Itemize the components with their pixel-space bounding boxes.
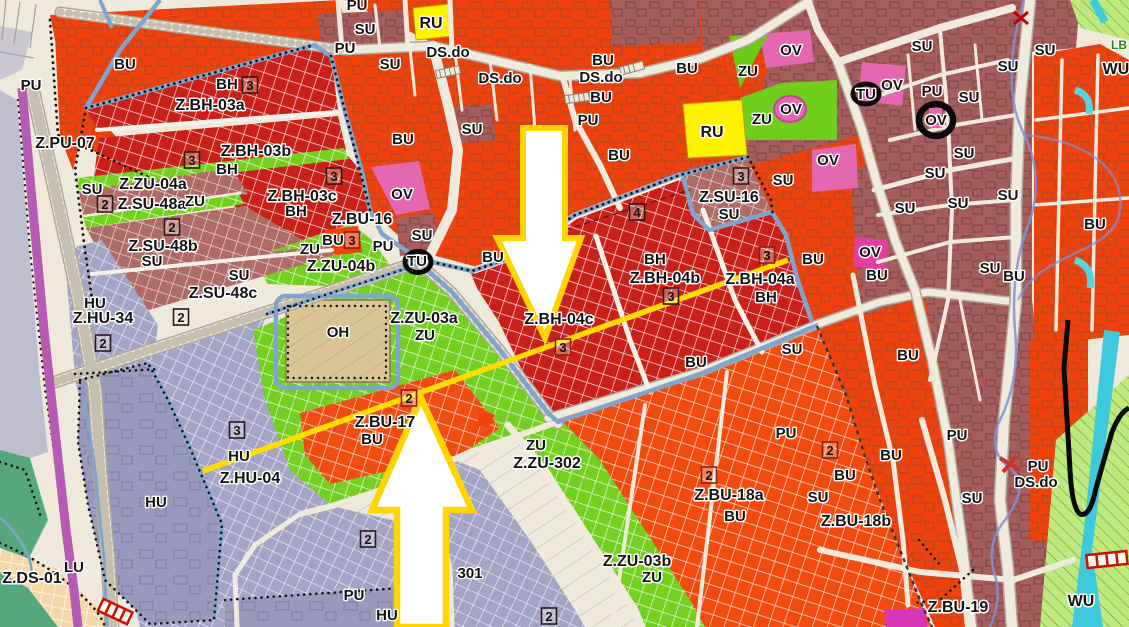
svg-text:DS.do: DS.do <box>478 70 521 87</box>
svg-text:2: 2 <box>168 220 175 235</box>
svg-text:Z.ZU-03a: Z.ZU-03a <box>390 310 458 327</box>
svg-text:Z.BU-18b: Z.BU-18b <box>821 513 891 530</box>
svg-text:DS.do: DS.do <box>426 44 469 61</box>
svg-text:DS.do: DS.do <box>579 69 622 86</box>
svg-text:ZU: ZU <box>738 63 758 80</box>
svg-text:OV: OV <box>925 112 947 129</box>
svg-text:BH: BH <box>216 161 238 178</box>
svg-text:2: 2 <box>705 468 712 483</box>
svg-text:BU: BU <box>608 147 630 164</box>
svg-text:BH: BH <box>216 76 238 93</box>
svg-text:BH: BH <box>644 251 666 268</box>
svg-text:Z.ZU-04a: Z.ZU-04a <box>119 176 187 193</box>
svg-text:Z.SU-48a: Z.SU-48a <box>118 196 187 213</box>
svg-text:ZU: ZU <box>185 193 205 210</box>
svg-text:PU: PU <box>373 238 394 255</box>
svg-text:SU: SU <box>912 38 933 55</box>
svg-text:ZU: ZU <box>642 569 662 586</box>
svg-text:LB: LB <box>1111 38 1127 52</box>
svg-text:TU: TU <box>407 253 427 270</box>
svg-text:SU: SU <box>925 165 946 182</box>
svg-text:SU: SU <box>782 341 803 358</box>
svg-text:ZU: ZU <box>415 327 435 344</box>
svg-text:Z.HU-04: Z.HU-04 <box>220 470 281 487</box>
svg-text:HU: HU <box>145 494 167 511</box>
svg-text:SU: SU <box>229 267 250 284</box>
svg-text:OV: OV <box>780 101 802 118</box>
svg-text:RU: RU <box>419 15 442 32</box>
svg-text:BU: BU <box>592 52 614 69</box>
svg-text:2: 2 <box>405 391 412 406</box>
svg-text:OV: OV <box>780 42 802 59</box>
svg-text:SU: SU <box>1035 42 1056 59</box>
svg-text:ZU: ZU <box>300 241 320 258</box>
svg-text:BU: BU <box>322 232 344 249</box>
svg-text:2: 2 <box>364 532 371 547</box>
svg-text:PU: PU <box>1028 458 1049 475</box>
svg-text:ZU: ZU <box>752 111 772 128</box>
svg-text:SU: SU <box>948 195 969 212</box>
svg-text:3: 3 <box>348 233 355 248</box>
svg-text:3: 3 <box>233 423 240 438</box>
svg-text:WU: WU <box>1103 61 1129 78</box>
svg-text:301: 301 <box>457 565 482 582</box>
svg-text:BU: BU <box>880 447 902 464</box>
svg-text:SU: SU <box>808 489 829 506</box>
svg-text:SU: SU <box>719 206 740 223</box>
svg-text:Z.PU-07: Z.PU-07 <box>35 135 95 152</box>
svg-text:HU: HU <box>376 607 398 624</box>
svg-text:PU: PU <box>922 83 943 100</box>
svg-text:OV: OV <box>391 186 413 203</box>
svg-text:SU: SU <box>980 260 1001 277</box>
svg-text:BU: BU <box>1084 216 1106 233</box>
svg-text:BU: BU <box>1003 268 1025 285</box>
svg-text:Z.DS-01: Z.DS-01 <box>2 570 62 587</box>
svg-text:ZU: ZU <box>526 437 546 454</box>
svg-text:3: 3 <box>667 289 674 304</box>
svg-text:PU: PU <box>344 587 365 604</box>
svg-text:2: 2 <box>99 336 106 351</box>
svg-text:OV: OV <box>817 152 839 169</box>
svg-text:PU: PU <box>776 425 797 442</box>
svg-text:BU: BU <box>866 267 888 284</box>
svg-text:BU: BU <box>482 249 504 266</box>
svg-text:Z.SU-48c: Z.SU-48c <box>189 285 258 302</box>
svg-text:2: 2 <box>177 310 184 325</box>
svg-text:Z.ZU-302: Z.ZU-302 <box>513 455 581 472</box>
svg-text:PU: PU <box>347 0 368 14</box>
svg-text:PU: PU <box>21 77 42 94</box>
svg-text:2: 2 <box>101 197 108 212</box>
svg-text:PU: PU <box>335 40 356 57</box>
svg-text:PU: PU <box>947 427 968 444</box>
svg-text:3: 3 <box>330 169 337 184</box>
svg-text:DS.do: DS.do <box>1014 474 1057 491</box>
svg-text:Z.BH-04a: Z.BH-04a <box>725 271 794 288</box>
svg-text:SU: SU <box>412 227 433 244</box>
svg-text:Z.BH-04b: Z.BH-04b <box>630 270 700 287</box>
svg-text:Z.ZU-03b: Z.ZU-03b <box>603 553 672 570</box>
svg-text:2: 2 <box>826 443 833 458</box>
svg-text:BH: BH <box>755 289 777 306</box>
svg-text:4: 4 <box>633 205 641 220</box>
svg-text:BU: BU <box>897 347 919 364</box>
svg-text:SU: SU <box>895 200 916 217</box>
svg-text:OV: OV <box>881 77 903 94</box>
svg-text:Z.BU-18a: Z.BU-18a <box>694 487 763 504</box>
svg-text:2: 2 <box>545 609 552 624</box>
svg-text:PU: PU <box>578 112 599 129</box>
svg-text:SU: SU <box>959 89 980 106</box>
svg-text:Z.HU-34: Z.HU-34 <box>73 310 134 327</box>
svg-text:3: 3 <box>559 340 566 355</box>
svg-text:HU: HU <box>228 448 250 465</box>
svg-text:BU: BU <box>834 467 856 484</box>
svg-text:Z.BH-03b: Z.BH-03b <box>221 143 291 160</box>
svg-text:BU: BU <box>361 431 383 448</box>
svg-text:SU: SU <box>380 56 401 73</box>
svg-text:3: 3 <box>246 78 253 93</box>
svg-text:RU: RU <box>700 124 723 141</box>
svg-text:BU: BU <box>590 89 612 106</box>
svg-text:BU: BU <box>685 354 707 371</box>
svg-text:Z.BU-16: Z.BU-16 <box>332 211 393 228</box>
svg-text:Z.BH-04c: Z.BH-04c <box>524 311 593 328</box>
svg-text:BU: BU <box>114 56 136 73</box>
svg-text:Z.BH-03a: Z.BH-03a <box>175 97 244 114</box>
svg-text:BH: BH <box>285 203 307 220</box>
svg-text:Z.SU-48b: Z.SU-48b <box>128 238 198 255</box>
svg-text:Z.ZU-04b: Z.ZU-04b <box>307 258 376 275</box>
svg-text:SU: SU <box>773 172 794 189</box>
svg-text:SU: SU <box>954 145 975 162</box>
svg-text:BU: BU <box>676 60 698 77</box>
svg-text:WU: WU <box>1068 593 1095 610</box>
svg-text:Z.BU-17: Z.BU-17 <box>355 414 416 431</box>
svg-text:SU: SU <box>355 21 376 38</box>
svg-text:Z.BU-19: Z.BU-19 <box>928 599 989 616</box>
svg-text:3: 3 <box>737 169 744 184</box>
svg-text:BU: BU <box>802 251 824 268</box>
svg-text:SU: SU <box>962 490 983 507</box>
svg-text:OV: OV <box>859 244 881 261</box>
svg-text:SU: SU <box>462 121 483 138</box>
svg-text:3: 3 <box>763 248 770 263</box>
svg-text:TU: TU <box>856 86 876 103</box>
svg-text:OH: OH <box>327 324 350 341</box>
svg-text:SU: SU <box>998 58 1019 75</box>
svg-text:SU: SU <box>142 253 163 270</box>
svg-text:BU: BU <box>724 508 746 525</box>
svg-text:BU: BU <box>392 131 414 148</box>
svg-text:SU: SU <box>998 187 1019 204</box>
svg-text:LU: LU <box>64 559 84 576</box>
svg-text:Z.SU-16: Z.SU-16 <box>699 189 759 206</box>
svg-text:3: 3 <box>188 153 195 168</box>
